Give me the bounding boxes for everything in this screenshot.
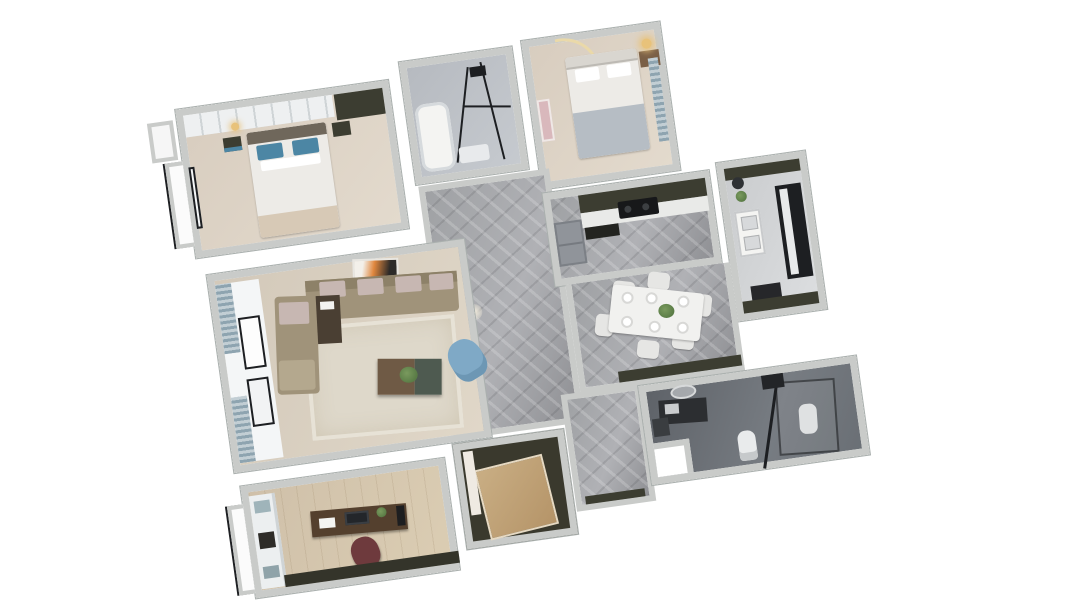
- books-2: [263, 565, 281, 579]
- desk-lamp-icon: [396, 505, 406, 526]
- room-bedroom-2: [521, 22, 681, 190]
- balcony-window-1: [238, 315, 267, 370]
- desk-plant-icon: [376, 507, 387, 518]
- nightstand-left: [223, 136, 243, 152]
- dining-table: [608, 284, 705, 341]
- room-closet: [452, 429, 578, 550]
- books-1: [254, 500, 272, 514]
- chaise-cushion: [279, 302, 310, 325]
- plate-6: [676, 321, 689, 334]
- coffee-table: [378, 359, 442, 395]
- room-study: [240, 458, 460, 599]
- apartment-plan: [172, 0, 892, 600]
- sofa-cushion-3: [395, 275, 422, 293]
- shower-tray: [458, 144, 490, 164]
- shelf-dark-box: [258, 531, 276, 549]
- plate-3: [677, 295, 690, 308]
- burner-icon: [624, 205, 632, 213]
- refrigerator: [554, 219, 588, 266]
- sofa-cushion-4: [429, 273, 454, 291]
- balcony-curtain-top: [215, 283, 241, 355]
- side-table-paper: [320, 301, 334, 310]
- plate-2: [645, 292, 658, 305]
- nightstand-right: [332, 121, 352, 137]
- vanity-stool: [652, 417, 670, 437]
- coffee-table-green-half: [415, 359, 442, 395]
- plant-icon: [735, 190, 747, 202]
- plate-1: [621, 291, 634, 304]
- table-lamp-icon: [641, 38, 652, 49]
- monitor-icon: [344, 510, 369, 525]
- balcony-window-2: [246, 376, 274, 427]
- coffee-table-plant-icon: [400, 367, 418, 383]
- sofa-side-table: [316, 295, 342, 344]
- desk: [310, 503, 408, 537]
- burner-icon-2: [642, 203, 650, 211]
- vanity-sink: [665, 403, 680, 414]
- double-sink: [734, 208, 766, 257]
- sofa-chaise-section: [274, 295, 319, 394]
- sofa-cushion-2: [357, 278, 384, 296]
- grey-blanket: [573, 104, 651, 160]
- wall-notch: [653, 439, 693, 478]
- sink-basin-2: [743, 235, 761, 251]
- shower-enclosure: [775, 378, 840, 456]
- window-glass-strip: [779, 188, 799, 274]
- plate-4: [620, 315, 633, 328]
- pillow-right: [606, 62, 632, 78]
- fridge-door-line: [559, 241, 583, 246]
- toilet: [736, 429, 758, 461]
- wood-wardrobe-panel: [474, 454, 559, 541]
- closet-cabinet: [334, 88, 386, 121]
- sink-basin-1: [741, 215, 759, 231]
- balcony: [215, 279, 284, 463]
- chaise-seat: [279, 360, 316, 391]
- bathtub: [414, 101, 457, 173]
- exterior-ledge: [147, 120, 178, 163]
- centerpiece-plant-icon: [658, 303, 675, 319]
- plate-5: [648, 320, 661, 333]
- room-living-room: [207, 239, 492, 473]
- room-bathroom-top: [399, 46, 529, 185]
- double-bed: [246, 122, 340, 238]
- bookshelf: [249, 493, 288, 590]
- pillow-left: [575, 67, 601, 83]
- entry-threshold: [585, 488, 646, 504]
- desk-papers: [319, 517, 336, 528]
- wok-fixture-icon: [731, 176, 745, 190]
- curtain-bedroom2: [648, 57, 670, 142]
- foot-blanket: [258, 205, 340, 238]
- room-master-bedroom: [175, 80, 409, 258]
- shower-fixture-white: [798, 403, 818, 434]
- floor-plan-render: [0, 0, 1080, 608]
- dining-chair-3: [636, 339, 660, 359]
- shower-rail: [463, 105, 511, 107]
- double-bed-2: [565, 48, 650, 159]
- dark-window-door: [775, 183, 814, 280]
